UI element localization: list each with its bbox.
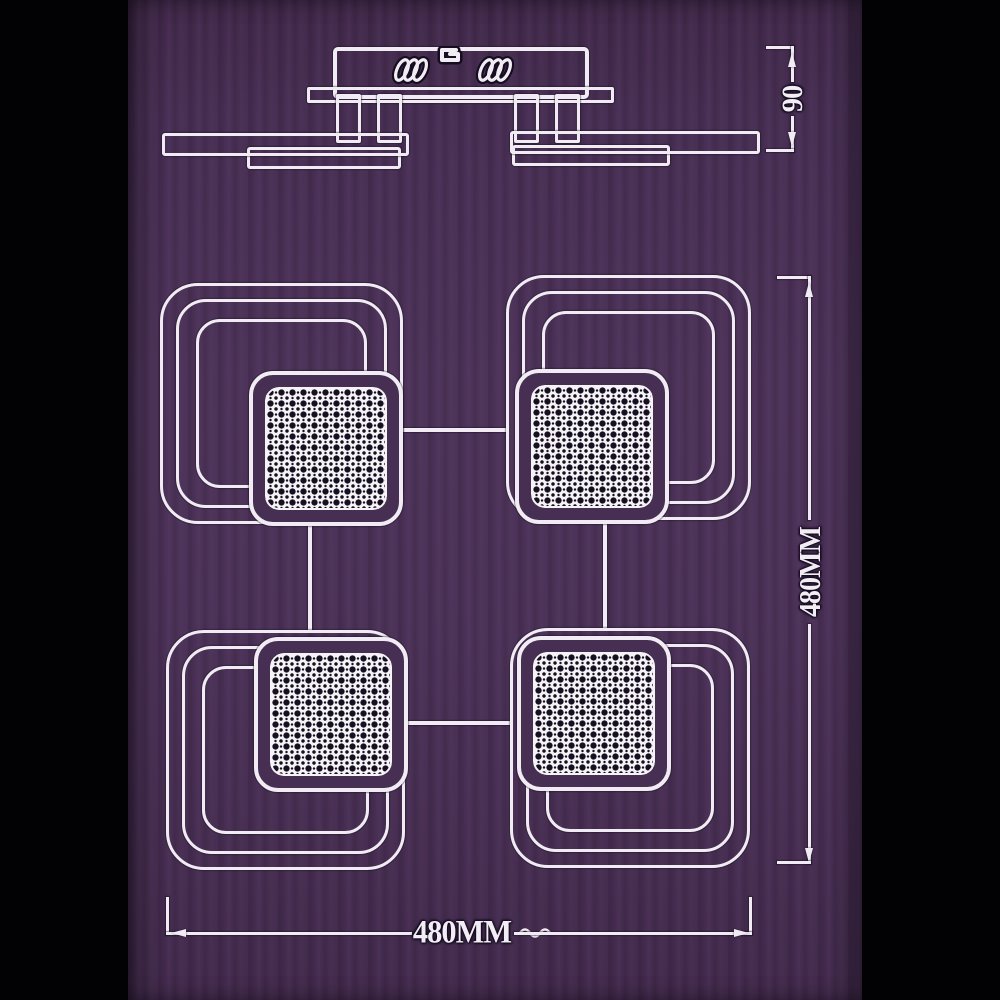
overall-width-dimension-label: 480MM: [413, 915, 511, 952]
dimension-hook: [766, 149, 794, 152]
spring-clip-icon: [390, 54, 434, 86]
mesh-panel: [270, 653, 392, 776]
frame-profile-left-upper: [162, 133, 409, 156]
arrow-left-icon: [171, 929, 186, 937]
wire-hook-icon: [432, 46, 464, 70]
arrow-down-icon: [788, 132, 796, 147]
dimension-line: [808, 276, 811, 520]
dimension-hook: [766, 46, 794, 49]
frame-profile-right-upper: [510, 131, 760, 154]
dimension-line: [166, 932, 412, 935]
dimension-tick: [749, 897, 752, 935]
mesh-panel: [265, 387, 387, 510]
led-frame-bottom-left: [166, 630, 405, 870]
led-panel-housing: [249, 371, 403, 526]
led-panel-housing: [517, 636, 671, 791]
led-panel-housing: [254, 637, 408, 792]
dimension-tick: [166, 897, 169, 935]
connector-bar: [402, 428, 506, 432]
connector-bar: [404, 721, 510, 725]
arrow-up-icon: [805, 282, 813, 297]
led-frame-bottom-right: [510, 628, 750, 868]
arrow-up-icon: [788, 52, 796, 67]
connector-bar: [308, 523, 312, 631]
right-black-bar: [862, 0, 1000, 1000]
mesh-panel: [533, 652, 655, 775]
overall-height-dimension-label: 480MM: [792, 527, 828, 617]
dimension-line: [514, 932, 752, 935]
left-black-bar: [0, 0, 128, 1000]
led-frame-top-left: [160, 283, 403, 524]
spring-clip-icon: [474, 54, 518, 86]
dimension-hook: [777, 276, 811, 279]
led-frame-top-right: [506, 275, 751, 520]
packaging-photo: 90 4: [0, 0, 1000, 1000]
led-panel-housing: [515, 369, 669, 524]
mesh-panel: [531, 385, 653, 508]
side-height-dimension-label: 90: [776, 86, 810, 113]
connector-bar: [603, 519, 607, 629]
dimension-hook: [777, 861, 811, 864]
dimension-line: [808, 624, 811, 864]
arrow-right-icon: [734, 929, 749, 937]
